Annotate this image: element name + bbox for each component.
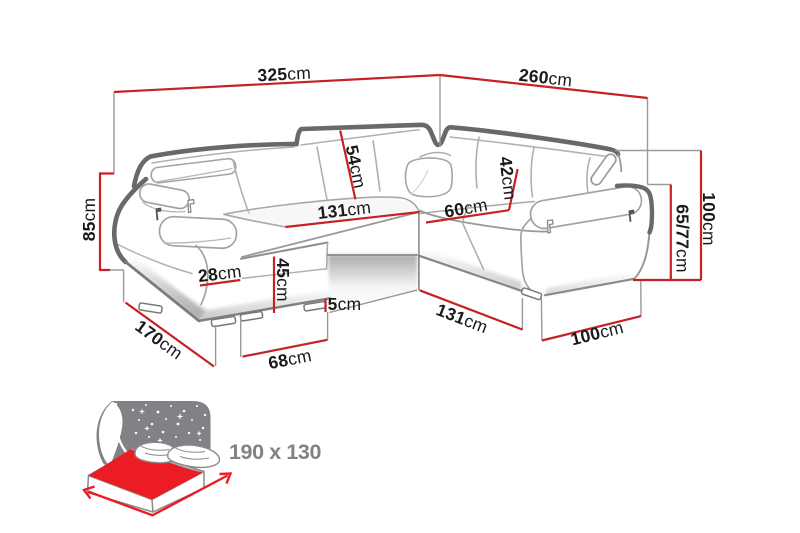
svg-text:190 x 130: 190 x 130 — [229, 440, 321, 464]
svg-text:325cm: 325cm — [257, 63, 312, 86]
svg-text:5cm: 5cm — [328, 294, 362, 314]
svg-text:100cm: 100cm — [699, 192, 719, 246]
svg-text:65/77cm: 65/77cm — [673, 204, 693, 273]
svg-text:45cm: 45cm — [273, 258, 293, 302]
svg-text:85cm: 85cm — [79, 198, 99, 242]
